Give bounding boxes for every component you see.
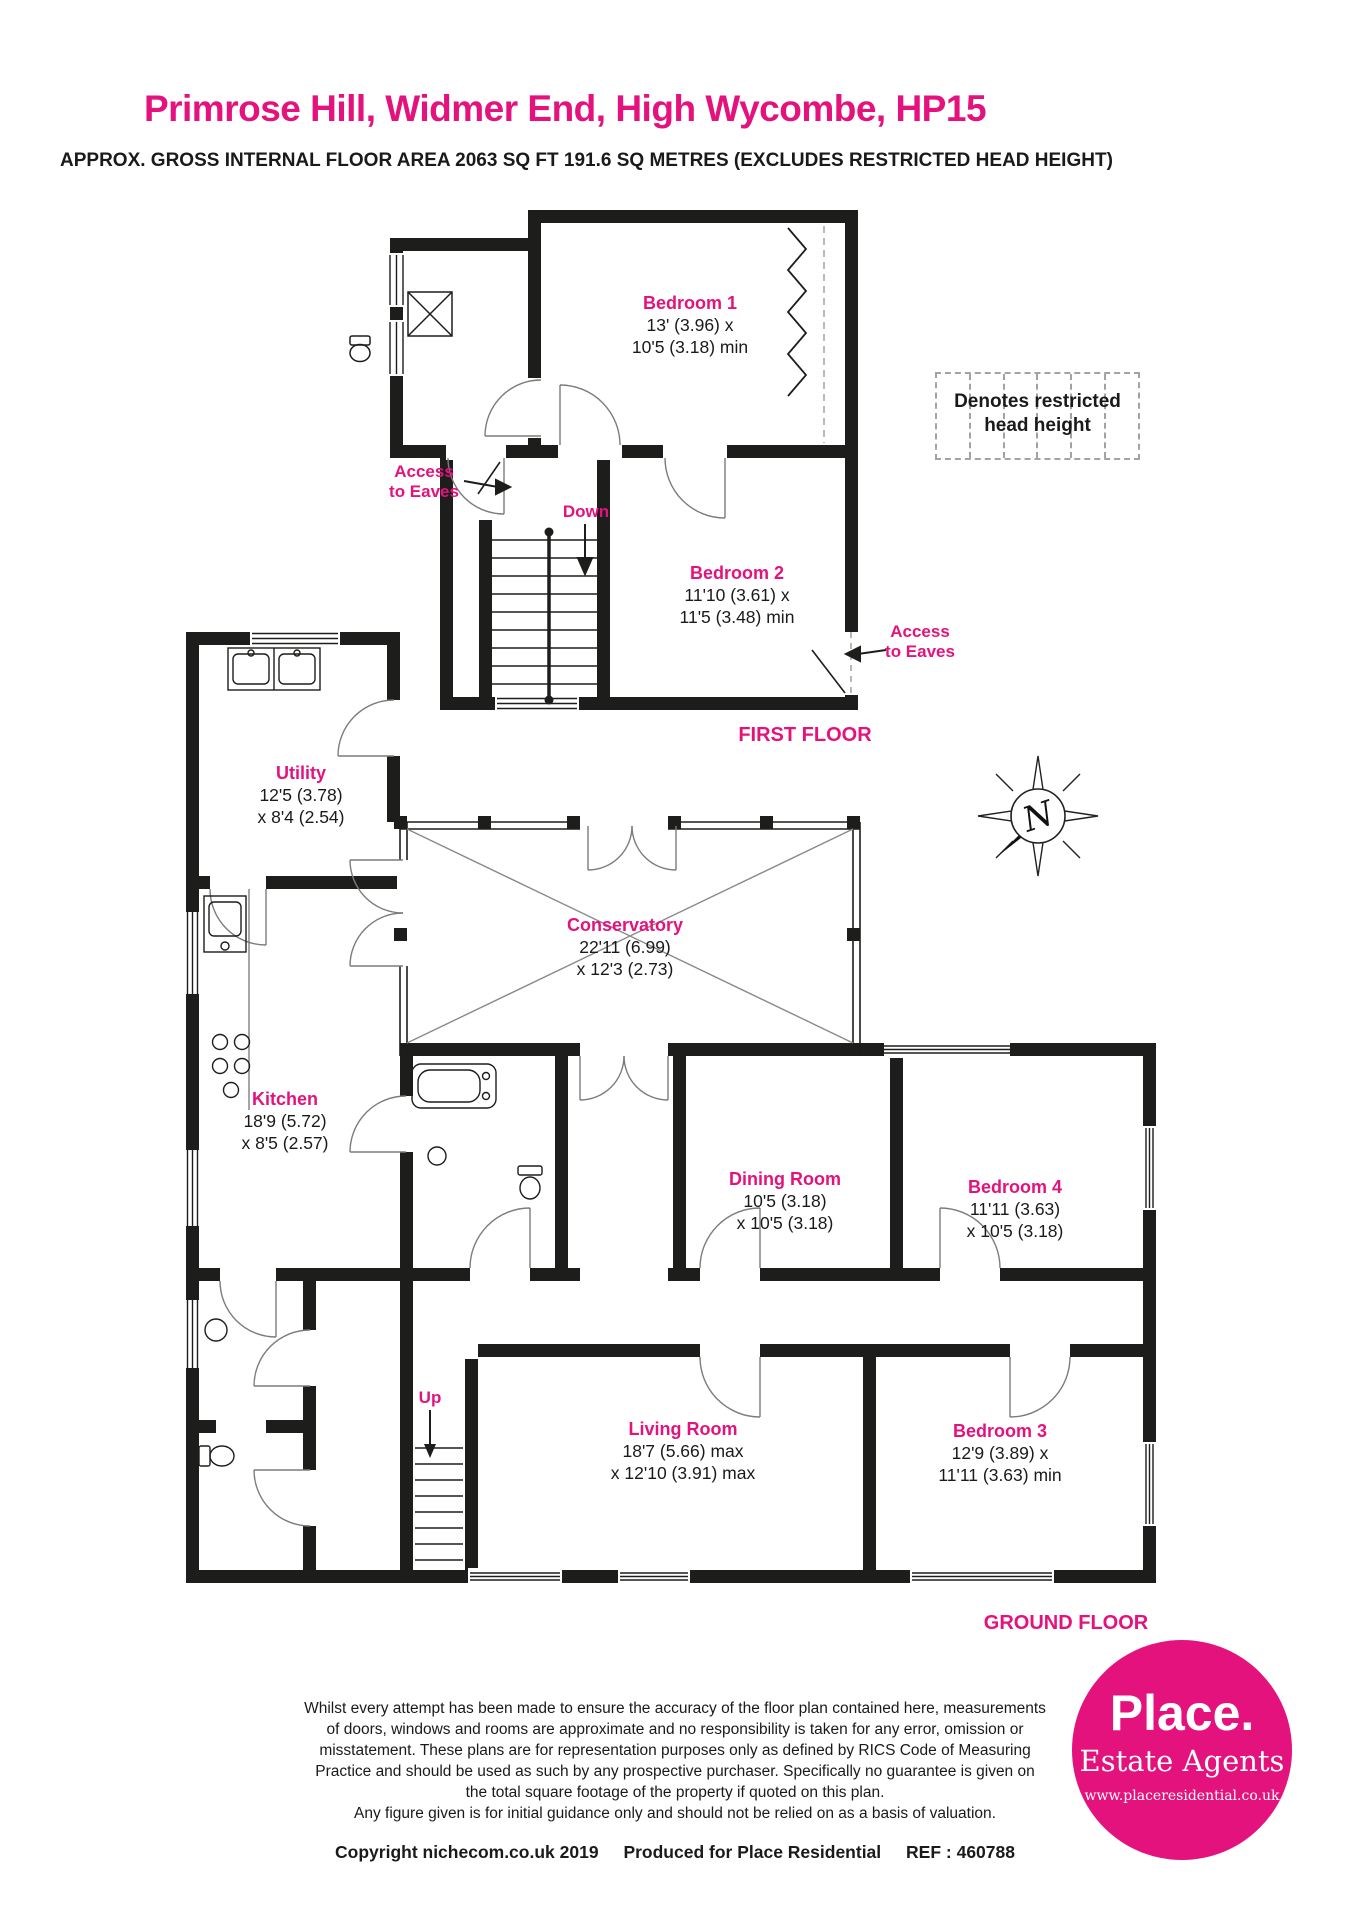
annotation-arrows-first-floor	[464, 480, 886, 661]
room-name: Bedroom 2	[680, 562, 795, 584]
room-dim: x 10'5 (3.18)	[729, 1212, 841, 1234]
room-dim: 11'10 (3.61) x	[680, 584, 795, 606]
access-to-eaves-note-right: Access to Eaves	[885, 622, 955, 662]
ground-floor-stairs	[415, 1410, 463, 1560]
disclaimer-text: Whilst every attempt has been made to en…	[230, 1698, 1120, 1824]
ground-floor-label: GROUND FLOOR	[984, 1612, 1148, 1635]
room-dim: x 10'5 (3.18)	[967, 1220, 1064, 1242]
access-to-eaves-note-left: Access to Eaves	[389, 462, 459, 502]
ground-floor-fixtures	[199, 648, 542, 1466]
room-dim: 11'11 (3.63) min	[938, 1464, 1061, 1486]
room-dim: x 8'4 (2.54)	[258, 806, 345, 828]
reference-number: REF : 460788	[906, 1842, 1015, 1862]
room-label-living-room: Living Room 18'7 (5.66) max x 12'10 (3.9…	[611, 1418, 755, 1484]
room-dim: 12'5 (3.78)	[258, 784, 345, 806]
room-name: Living Room	[611, 1418, 755, 1440]
down-note: Down	[563, 502, 609, 522]
room-label-bedroom-2: Bedroom 2 11'10 (3.61) x 11'5 (3.48) min	[680, 562, 795, 628]
room-name: Bedroom 3	[938, 1420, 1061, 1442]
copyright-text: Copyright nichecom.co.uk 2019	[335, 1842, 599, 1862]
room-dim: x 12'10 (3.91) max	[611, 1462, 755, 1484]
room-dim: 22'11 (6.99)	[567, 936, 683, 958]
copyright-line: Copyright nichecom.co.uk 2019 Produced f…	[255, 1842, 1095, 1863]
room-dim: x 8'5 (2.57)	[242, 1132, 329, 1154]
first-floor-label: FIRST FLOOR	[738, 724, 871, 747]
room-dim: x 12'3 (2.73)	[567, 958, 683, 980]
room-label-kitchen: Kitchen 18'9 (5.72) x 8'5 (2.57)	[242, 1088, 329, 1154]
room-name: Utility	[258, 762, 345, 784]
logo-website-text: www.placeresidential.co.uk	[1072, 1788, 1292, 1804]
place-estate-agents-logo: Place. Estate Agents www.placeresidentia…	[1072, 1640, 1292, 1860]
room-dim: 11'5 (3.48) min	[680, 606, 795, 628]
room-label-bedroom-1: Bedroom 1 13' (3.96) x 10'5 (3.18) min	[632, 292, 748, 358]
logo-tagline-text: Estate Agents	[1072, 1744, 1292, 1778]
room-dim: 11'11 (3.63)	[967, 1198, 1064, 1220]
produced-for-text: Produced for Place Residential	[623, 1842, 881, 1862]
room-dim: 10'5 (3.18) min	[632, 336, 748, 358]
room-name: Bedroom 1	[632, 292, 748, 314]
up-note: Up	[419, 1388, 442, 1408]
room-name: Conservatory	[567, 914, 683, 936]
legend-text: Denotes restricted head height	[935, 390, 1140, 438]
compass-icon: N	[978, 756, 1098, 876]
floorplan-page: Primrose Hill, Widmer End, High Wycombe,…	[0, 0, 1350, 1910]
room-label-utility: Utility 12'5 (3.78) x 8'4 (2.54)	[258, 762, 345, 828]
eaves-door-right	[812, 650, 845, 693]
room-name: Dining Room	[729, 1168, 841, 1190]
room-label-dining-room: Dining Room 10'5 (3.18) x 10'5 (3.18)	[729, 1168, 841, 1234]
room-dim: 18'7 (5.66) max	[611, 1440, 755, 1462]
first-floor-stairs	[492, 528, 597, 705]
room-name: Bedroom 4	[967, 1176, 1064, 1198]
room-label-bedroom-4: Bedroom 4 11'11 (3.63) x 10'5 (3.18)	[967, 1176, 1064, 1242]
room-label-bedroom-3: Bedroom 3 12'9 (3.89) x 11'11 (3.63) min	[938, 1420, 1061, 1486]
room-dim: 18'9 (5.72)	[242, 1110, 329, 1132]
room-name: Kitchen	[242, 1088, 329, 1110]
room-dim: 12'9 (3.89) x	[938, 1442, 1061, 1464]
room-dim: 10'5 (3.18)	[729, 1190, 841, 1212]
restricted-height-zigzag	[788, 228, 806, 396]
room-dim: 13' (3.96) x	[632, 314, 748, 336]
logo-brand-text: Place.	[1072, 1684, 1292, 1742]
room-label-conservatory: Conservatory 22'11 (6.99) x 12'3 (2.73)	[567, 914, 683, 980]
